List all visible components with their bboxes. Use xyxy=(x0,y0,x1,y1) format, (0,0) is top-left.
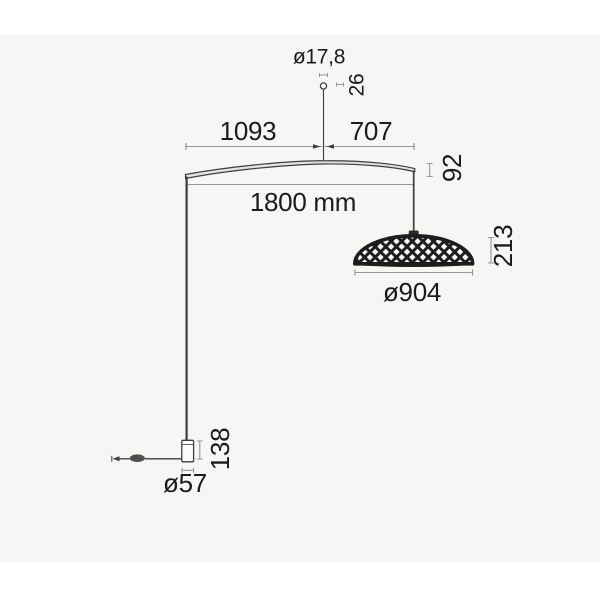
dim-label-span-left: 1093 xyxy=(220,118,277,144)
arm xyxy=(186,161,415,179)
dim-label-base-height: 138 xyxy=(207,428,233,470)
shade xyxy=(355,231,473,266)
base-group xyxy=(112,440,194,462)
cord-switch xyxy=(130,454,145,462)
dim-label-base-diameter: ø57 xyxy=(163,470,207,496)
dim-label-shade-height: 213 xyxy=(490,225,516,267)
stem-top-circle xyxy=(320,83,326,89)
shade-diameter-dimension-line xyxy=(355,270,473,276)
shade-dome xyxy=(355,236,473,264)
dim-label-stem-height: 26 xyxy=(347,74,368,97)
dim-label-arm-end-height: 92 xyxy=(439,154,465,182)
dim-label-span-right: 707 xyxy=(350,118,392,144)
lamp-dimension-diagram: ø17,8 26 1093 707 1800 mm 92 213 ø904 13… xyxy=(0,0,600,600)
ceiling-stem-group xyxy=(320,73,344,162)
dimension-drawing xyxy=(0,0,600,600)
base-cylinder xyxy=(182,440,194,462)
dim-label-span-total: 1800 mm xyxy=(250,189,356,215)
dim-label-shade-diameter: ø904 xyxy=(383,279,441,305)
arm-end-height-marker xyxy=(427,164,433,177)
base-height-marker xyxy=(197,441,203,459)
dim-label-stem-diameter: ø17,8 xyxy=(293,47,345,68)
cord-arrow xyxy=(113,456,120,461)
